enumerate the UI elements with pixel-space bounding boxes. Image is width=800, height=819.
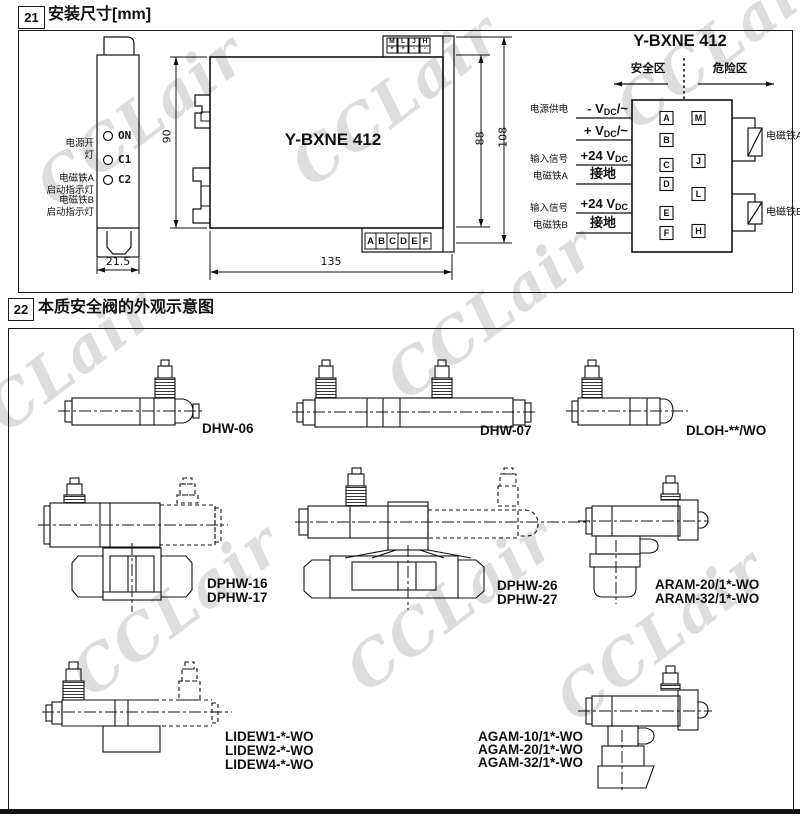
- valve-label-agam32: AGAM-32/1*-WO: [478, 755, 583, 771]
- page-bottom-border: [0, 809, 800, 814]
- solenoid-b-label: 电磁铁B: [766, 207, 800, 219]
- solenoid-a-label: 电磁铁A: [766, 131, 800, 143]
- bottom-terminal-d: D: [398, 234, 409, 249]
- wiring-terminal-f: F: [660, 227, 673, 240]
- safe-zone-label: 安全区: [625, 63, 671, 76]
- wiring-terminal-h: H: [692, 225, 705, 238]
- bottom-terminal-f: F: [420, 234, 431, 249]
- led-annotation-solenoid-b: 电磁铁B启动指示灯: [24, 172, 94, 241]
- top-terminal-h-sign: -: [420, 45, 430, 53]
- signal-ground-b: 接地: [542, 216, 616, 231]
- signal-minus-vdc: - VDC/~: [542, 102, 628, 117]
- section-21-number: 21: [18, 6, 45, 29]
- wiring-terminal-m: M: [692, 112, 705, 125]
- bottom-terminal-e: E: [409, 234, 420, 249]
- section-21-title: 安装尺寸[mm]: [48, 6, 151, 24]
- led-label-c1: C1: [118, 154, 131, 167]
- wiring-terminal-l: L: [692, 188, 705, 201]
- wiring-terminal-j: J: [692, 155, 705, 168]
- dim-height-90: 90: [162, 121, 175, 151]
- dhw-06-drawing: [58, 360, 205, 425]
- dim-h-88: 88: [475, 123, 488, 153]
- wiring-title: Y-BXNE 412: [598, 32, 762, 51]
- dim-length-135: 135: [296, 256, 366, 269]
- signal-24vdc-b: +24 VDC: [542, 197, 628, 212]
- bottom-terminal-c: C: [387, 234, 398, 249]
- dim-width-21-5: 21.5: [90, 256, 146, 269]
- agam-drawing: [578, 666, 712, 792]
- led-label-c2: C2: [118, 174, 131, 187]
- dim-h-108: 108: [498, 119, 511, 155]
- dphw-16-17-drawing: [38, 478, 228, 612]
- bottom-terminal-b: B: [376, 234, 387, 249]
- valve-label-dphw27: DPHW-27: [497, 592, 558, 608]
- wiring-terminal-b: B: [660, 134, 673, 147]
- signal-ground-a: 接地: [542, 167, 616, 182]
- top-terminal-l-sign: +: [398, 45, 408, 53]
- wiring-terminal-c: C: [660, 159, 673, 172]
- signal-plus-vdc: + VDC/~: [542, 124, 628, 139]
- valve-label-aram32: ARAM-32/1*-WO: [655, 591, 759, 607]
- section-22-number: 22: [8, 298, 34, 321]
- technical-drawings: [0, 0, 800, 819]
- bottom-terminal-a: A: [365, 234, 376, 249]
- side-view-model-label: Y-BXNE 412: [240, 130, 426, 150]
- lidew-drawing: [42, 662, 232, 752]
- wiring-terminal-e: E: [660, 207, 673, 220]
- led-label-on: ON: [118, 130, 131, 143]
- side-view-drawing: [170, 36, 512, 280]
- dhw-07-drawing: [292, 360, 536, 427]
- wiring-terminal-a: A: [660, 112, 673, 125]
- wiring-terminal-d: D: [660, 178, 673, 191]
- valve-label-dphw17: DPHW-17: [207, 590, 268, 606]
- valve-label-dhw07: DHW-07: [480, 423, 531, 439]
- top-terminal-j-sign: -: [409, 45, 419, 53]
- section-22-title: 本质安全阀的外观示意图: [38, 299, 214, 317]
- hazard-zone-label: 危险区: [707, 63, 753, 76]
- dloh-drawing: [566, 360, 688, 425]
- top-terminal-m-sign: +: [387, 45, 397, 53]
- signal-24vdc-a: +24 VDC: [542, 149, 628, 164]
- valve-label-dhw06: DHW-06: [202, 421, 253, 437]
- valve-label-dloh: DLOH-**/WO: [686, 423, 766, 439]
- catalog-page: CCLair CCLair CCLair CCLair CCLair CCLai…: [0, 0, 800, 819]
- valve-label-lidew4: LIDEW4-*-WO: [225, 757, 314, 773]
